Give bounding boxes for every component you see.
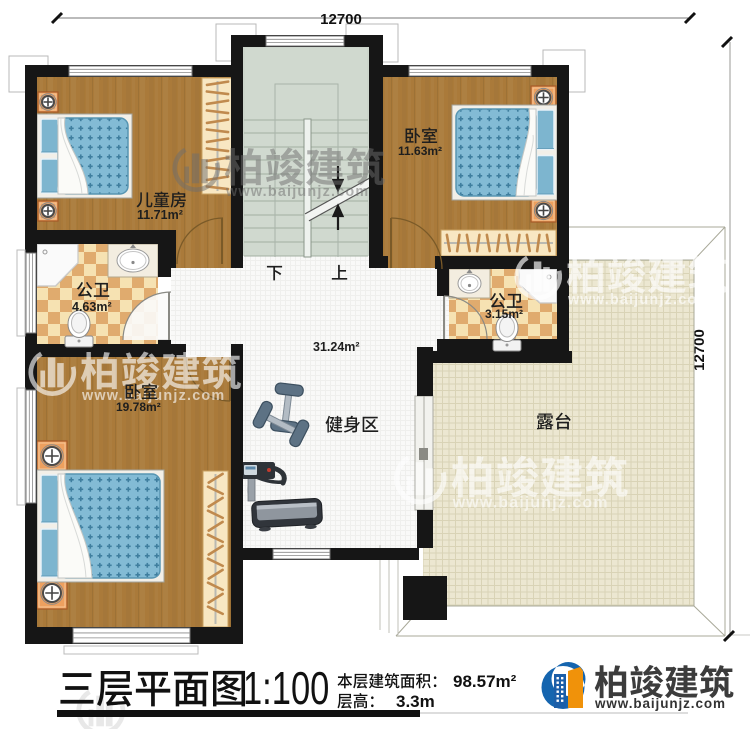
svg-text:98.57m²: 98.57m² bbox=[453, 672, 517, 691]
svg-text:www.baijunjz.com: www.baijunjz.com bbox=[225, 184, 369, 200]
svg-text:www.baijunjz.com: www.baijunjz.com bbox=[452, 494, 609, 511]
svg-text:4.63m²: 4.63m² bbox=[72, 300, 112, 314]
svg-text:12700: 12700 bbox=[320, 11, 362, 28]
svg-text:31.24m²: 31.24m² bbox=[313, 340, 360, 354]
svg-text:11.63m²: 11.63m² bbox=[398, 144, 442, 158]
svg-text:11.71m²: 11.71m² bbox=[137, 208, 183, 222]
svg-text:www.baijunjz.com: www.baijunjz.com bbox=[594, 696, 726, 711]
svg-text:3.15m²: 3.15m² bbox=[485, 307, 523, 321]
svg-text:1:100: 1:100 bbox=[243, 662, 329, 714]
svg-text:19.78m²: 19.78m² bbox=[116, 400, 161, 414]
svg-text:3.3m: 3.3m bbox=[396, 692, 435, 711]
svg-text:www.baijunjz.com: www.baijunjz.com bbox=[567, 292, 711, 308]
